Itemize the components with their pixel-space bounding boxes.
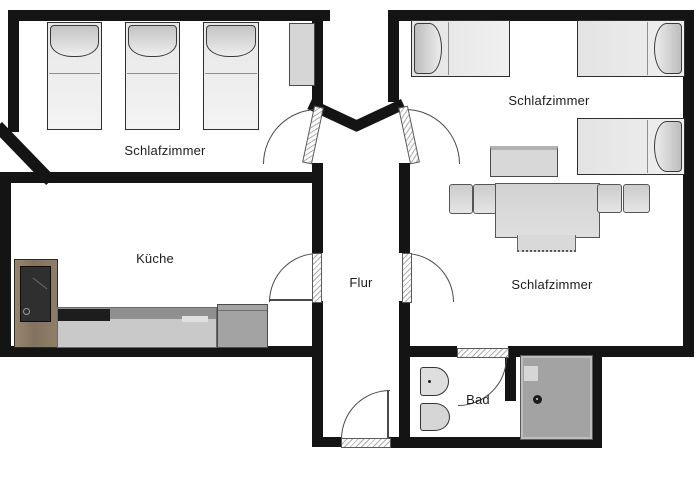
bathroom-door-threshold [457,348,509,358]
kitchen-door-arc [269,253,318,302]
bed-1-pillow [50,25,99,57]
bed-2 [125,22,180,130]
room-label-bedroom-top-right: Schlafzimmer [469,93,629,108]
bed-1-fold [49,73,100,74]
bed-2-pillow [128,25,177,57]
bed-3-fold [205,73,257,74]
shower-tray-icon [524,366,538,381]
shower-head-dot [536,398,538,400]
wall-bathroom-top-left [410,346,457,357]
refrigerator [14,259,58,348]
wall-hallway-bottom-left [312,437,342,447]
sofa-cushion-3 [597,184,622,213]
wall-chevron-right [352,99,406,132]
kitchen-appliance [217,304,268,348]
kitchen-door-open-leaf [269,299,317,301]
sofa-skirt [517,235,576,252]
toilet [420,367,449,396]
bed-6-fold [647,120,648,173]
cooktop [58,309,110,321]
room-label-hallway: Flur [321,275,401,290]
wall-kitchen-top [0,172,323,183]
bidet [420,403,450,431]
bedroomR-door-leaf [402,253,412,303]
bed-6 [577,118,685,175]
bedroomR-door-arc [405,253,454,302]
nightstand [289,23,315,86]
room-label-kitchen: Küche [95,251,215,266]
toilet-drain-icon [428,380,431,383]
wall-hallway-left-lower [312,301,323,447]
bed-1 [47,22,102,130]
floorplan: Schlafzimmer Schlafzimmer Küche Flur Sch… [0,0,700,500]
wall-left-top-room [8,10,19,132]
shower-head-icon [533,395,542,404]
bedroomTR-table [490,146,558,177]
bed-6-pillow [654,121,682,172]
kitchen-appliance-top-line [218,310,267,311]
refrigerator-handle-icon [23,308,30,315]
sofa-body [495,183,600,238]
room-label-bathroom: Bad [448,392,508,407]
bed-4-pillow [414,23,442,74]
sofa-cushion-4 [623,184,650,213]
entrance-door-open-leaf [387,390,389,438]
sofa-cushion-1 [449,184,473,214]
room-label-bedroom-top-left: Schlafzimmer [85,143,245,158]
bed-4 [411,20,510,77]
refrigerator-highlight [33,278,48,290]
wall-bedroomTR-left [388,10,399,102]
bed-2-fold [127,73,178,74]
wall-hallway-right-lower [399,301,410,447]
entrance-door-arc [341,390,390,439]
shower [520,355,593,440]
refrigerator-front-panel [20,266,51,322]
wall-top-left-section [8,10,330,21]
sofa-cushion-2 [473,184,497,214]
wall-hallway-right-upper [399,163,410,253]
bed-5-pillow [654,23,682,74]
entrance-door-threshold [341,438,391,448]
kitchen-sink [182,316,208,322]
bed-3-pillow [206,25,256,57]
wall-hallway-left-upper [312,163,323,253]
room-label-bedroom-right: Schlafzimmer [472,277,632,292]
wall-kitchen-left [0,172,11,357]
bed-5 [577,20,685,77]
bed-4-fold [448,22,449,75]
bed-5-fold [647,22,648,75]
bed-3 [203,22,259,130]
